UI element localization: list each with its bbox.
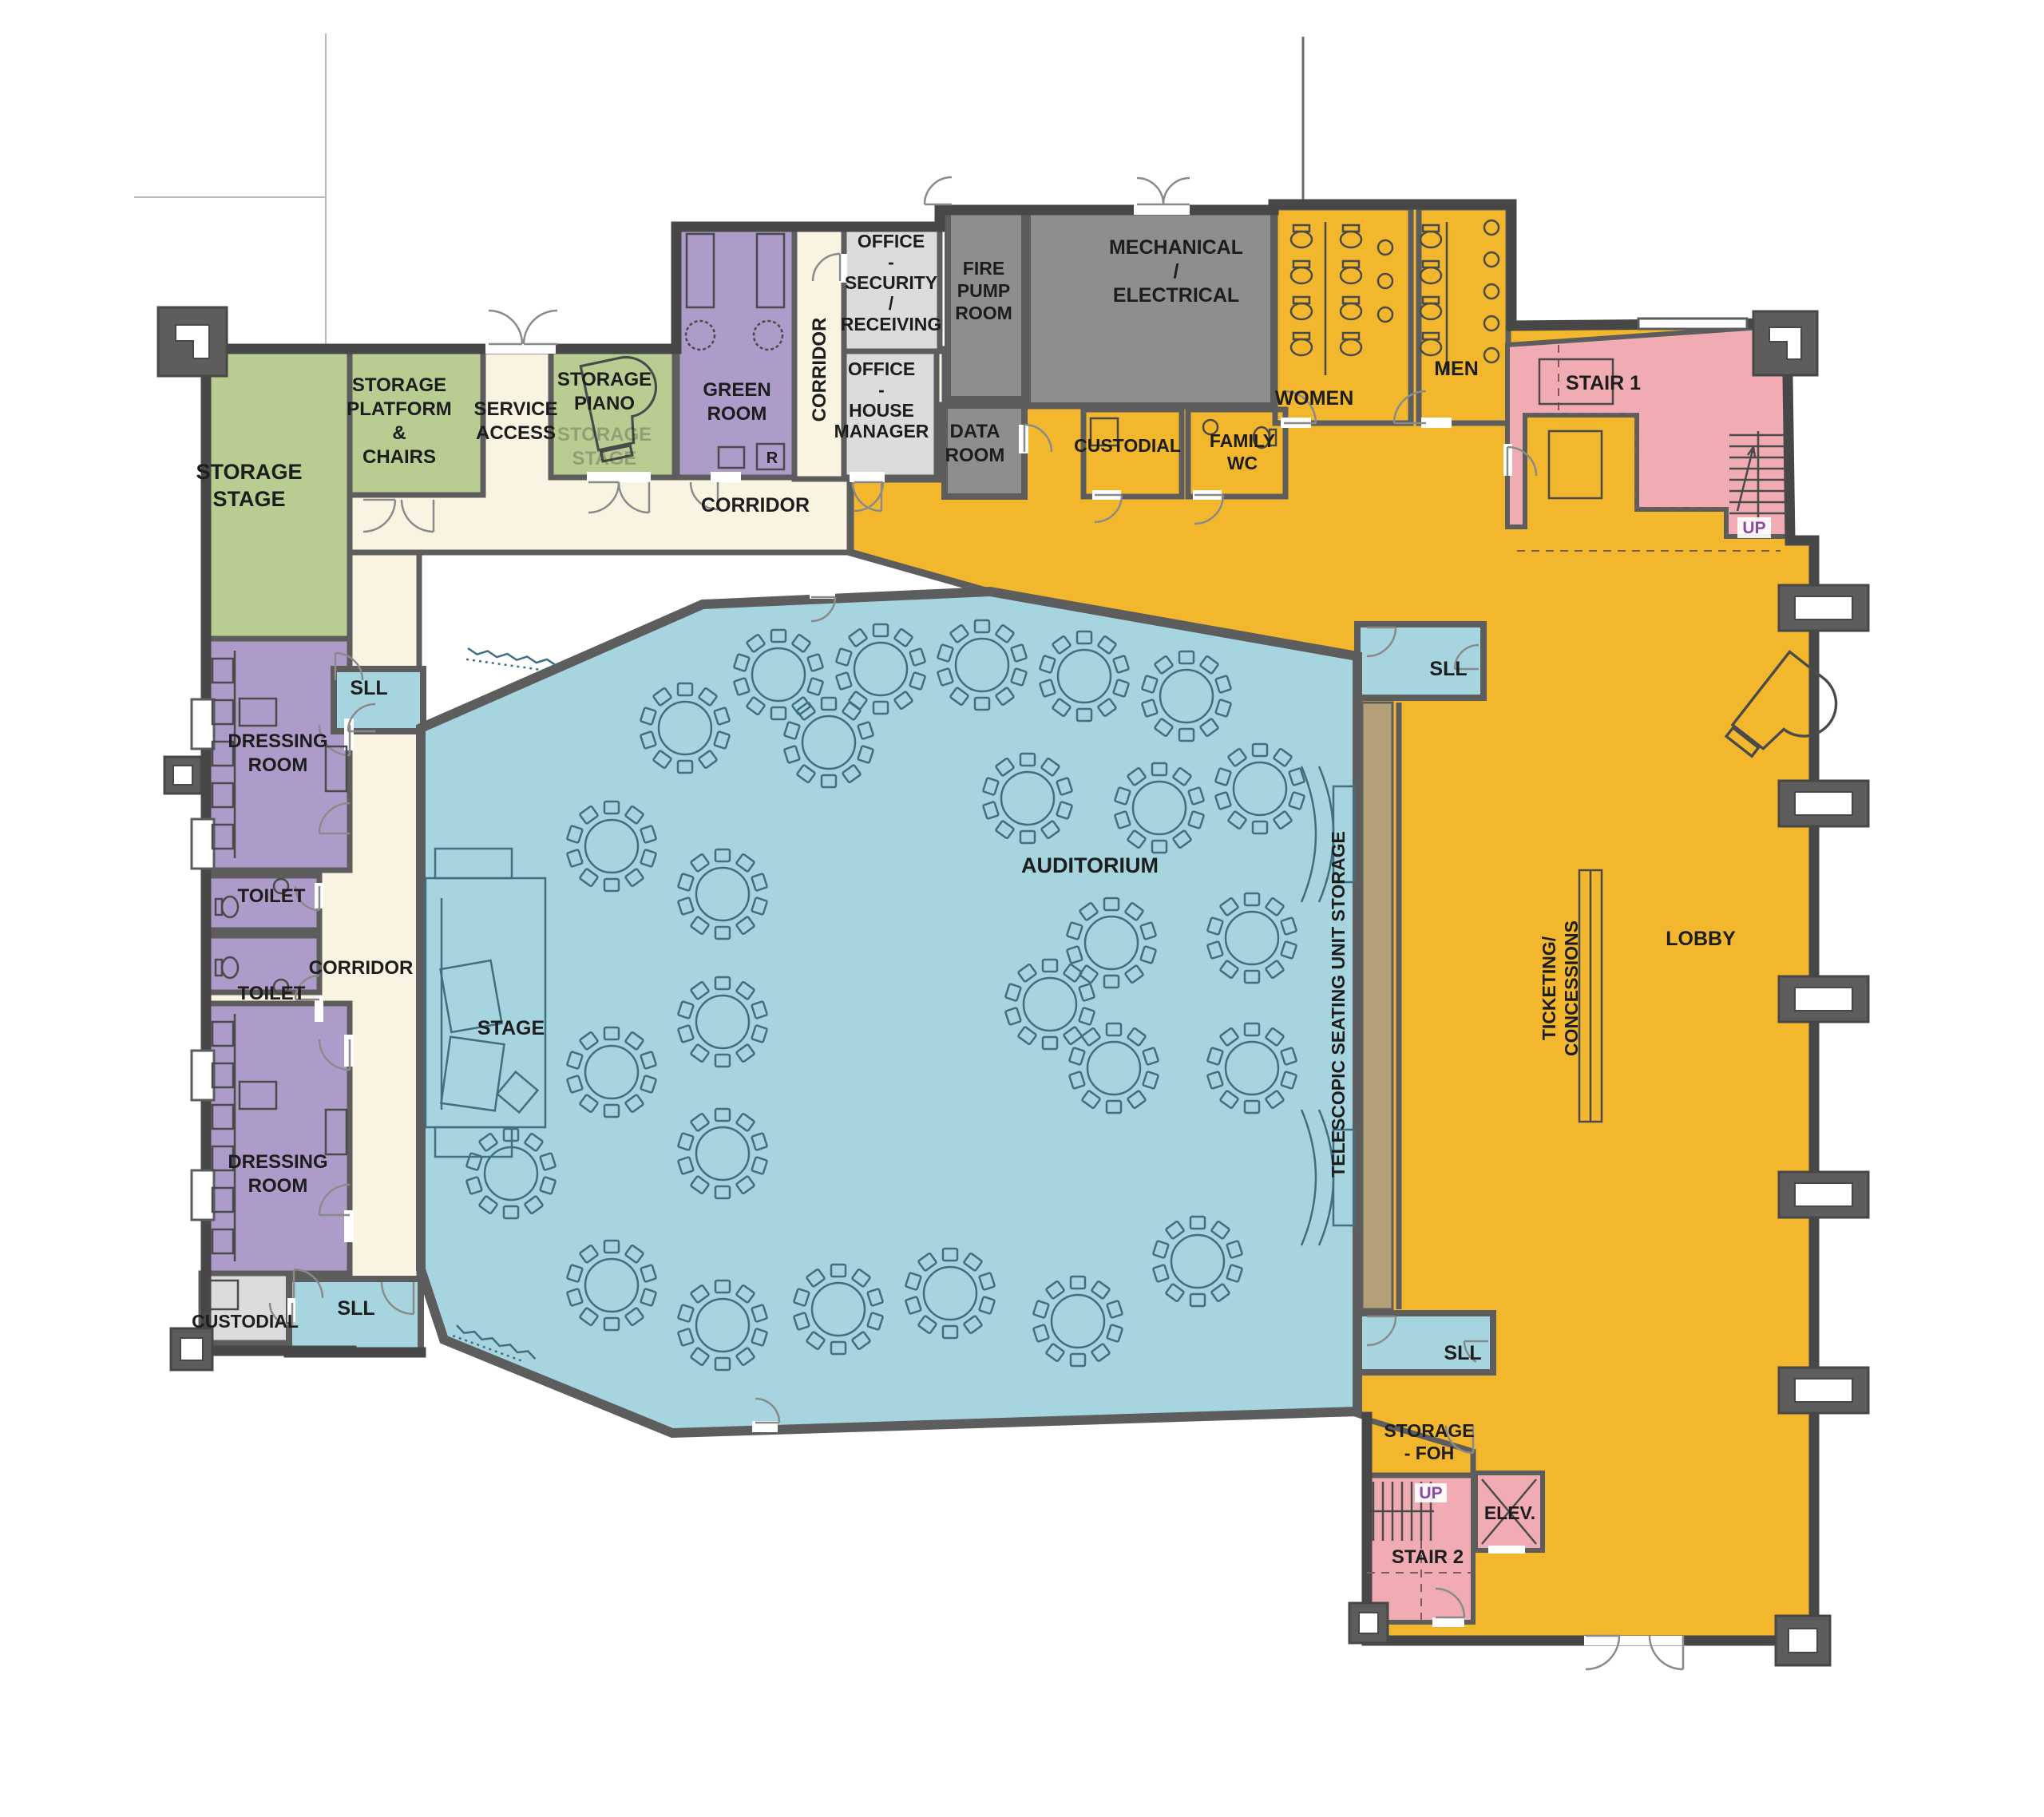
label-women: WOMEN — [1275, 387, 1354, 410]
label-green-room: GREEN — [703, 379, 770, 401]
label-stage: STAGE — [477, 1017, 545, 1039]
label-up-stair1: UP — [1742, 519, 1765, 537]
label-sll-nw: SLL — [350, 677, 387, 699]
label-sll-ne: SLL — [1429, 658, 1467, 680]
svg-text:ROOM: ROOM — [707, 403, 767, 425]
label-fridge: R — [766, 449, 778, 467]
svg-text:-: - — [888, 251, 894, 272]
floor-plan-svg: STORAGE STAGE STORAGE PLATFORM & CHAIRS … — [0, 0, 2044, 1817]
label-storage-platform: STORAGE — [352, 374, 446, 396]
svg-text:WC: WC — [1227, 453, 1258, 473]
label-dressing-north: DRESSING — [228, 730, 327, 752]
label-dressing-south: DRESSING — [228, 1151, 327, 1173]
svg-text:STAGE: STAGE — [212, 487, 285, 511]
svg-text:/: / — [889, 293, 894, 314]
svg-text:ROOM: ROOM — [955, 303, 1012, 323]
svg-text:ELECTRICAL: ELECTRICAL — [1113, 284, 1239, 307]
svg-text:&: & — [392, 422, 406, 444]
label-storage-piano: STORAGE — [557, 369, 652, 390]
svg-text:PLATFORM: PLATFORM — [347, 398, 452, 420]
svg-text:PIANO: PIANO — [574, 393, 635, 414]
label-stair1: STAIR 1 — [1566, 372, 1641, 394]
label-storage-foh: STORAGE — [1384, 1420, 1474, 1441]
label-corridor-west: CORRIDOR — [309, 957, 414, 979]
svg-text:RECEIVING: RECEIVING — [841, 314, 942, 335]
room-green-room — [677, 225, 794, 477]
label-toilet-2: TOILET — [238, 983, 306, 1004]
label-telescopic: TELESCOPIC SEATING UNIT STORAGE — [1328, 831, 1349, 1178]
label-mechanical: MECHANICAL — [1109, 236, 1243, 259]
floor-plan: STORAGE STAGE STORAGE PLATFORM & CHAIRS … — [0, 0, 2044, 1817]
room-auditorium — [421, 592, 1357, 1433]
label-sll-se: SLL — [1444, 1342, 1481, 1364]
label-corridor-ns: CORRIDOR — [809, 318, 830, 422]
svg-text:MANAGER: MANAGER — [834, 421, 929, 441]
room-storage-platform-chairs — [350, 349, 483, 495]
window-stair1 — [1638, 319, 1747, 329]
label-office-house-manager: OFFICE — [848, 358, 915, 379]
label-up-stair2: UP — [1419, 1484, 1442, 1502]
label-corridor-main: CORRIDOR — [701, 494, 810, 517]
label-lobby: LOBBY — [1666, 928, 1736, 950]
telescopic-seating-unit — [1362, 703, 1392, 1309]
label-men: MEN — [1434, 358, 1479, 380]
svg-text:-: - — [878, 379, 885, 400]
svg-text:HOUSE: HOUSE — [849, 400, 914, 421]
label-office-security: OFFICE — [858, 231, 925, 251]
label-family-wc: FAMILY — [1210, 430, 1275, 451]
svg-text:PUMP: PUMP — [957, 280, 1010, 301]
label-data-room: DATA — [949, 421, 1000, 442]
label-sll-sw: SLL — [337, 1297, 374, 1320]
svg-text:STAGE: STAGE — [572, 448, 637, 469]
svg-text:/: / — [1174, 260, 1179, 283]
label-fire-pump: FIRE — [963, 258, 1004, 279]
svg-text:- FOH: - FOH — [1404, 1443, 1455, 1463]
label-toilet-1: TOILET — [238, 885, 306, 907]
label-stair2: STAIR 2 — [1392, 1546, 1464, 1568]
svg-text:ROOM: ROOM — [248, 754, 308, 776]
svg-text:CONCESSIONS: CONCESSIONS — [1561, 920, 1582, 1056]
label-storage-stage: STORAGE — [196, 460, 302, 484]
svg-text:ROOM: ROOM — [945, 445, 1005, 466]
svg-text:SECURITY: SECURITY — [845, 272, 937, 293]
label-ticketing: TICKETING/ — [1539, 936, 1559, 1040]
label-elevator: ELEV. — [1484, 1502, 1535, 1523]
label-auditorium: AUDITORIUM — [1021, 853, 1159, 877]
label-custodial-north: CUSTODIAL — [1074, 435, 1181, 456]
label-storage-stage-ghost: STORAGE — [557, 424, 652, 445]
svg-text:ACCESS: ACCESS — [476, 422, 556, 444]
svg-text:CHAIRS: CHAIRS — [362, 446, 436, 468]
svg-text:ROOM: ROOM — [248, 1175, 308, 1197]
label-service-access: SERVICE — [474, 398, 558, 420]
room-custodial-south — [201, 1273, 293, 1343]
label-custodial-south: CUSTODIAL — [192, 1311, 299, 1332]
room-dressing-south — [206, 1004, 350, 1273]
